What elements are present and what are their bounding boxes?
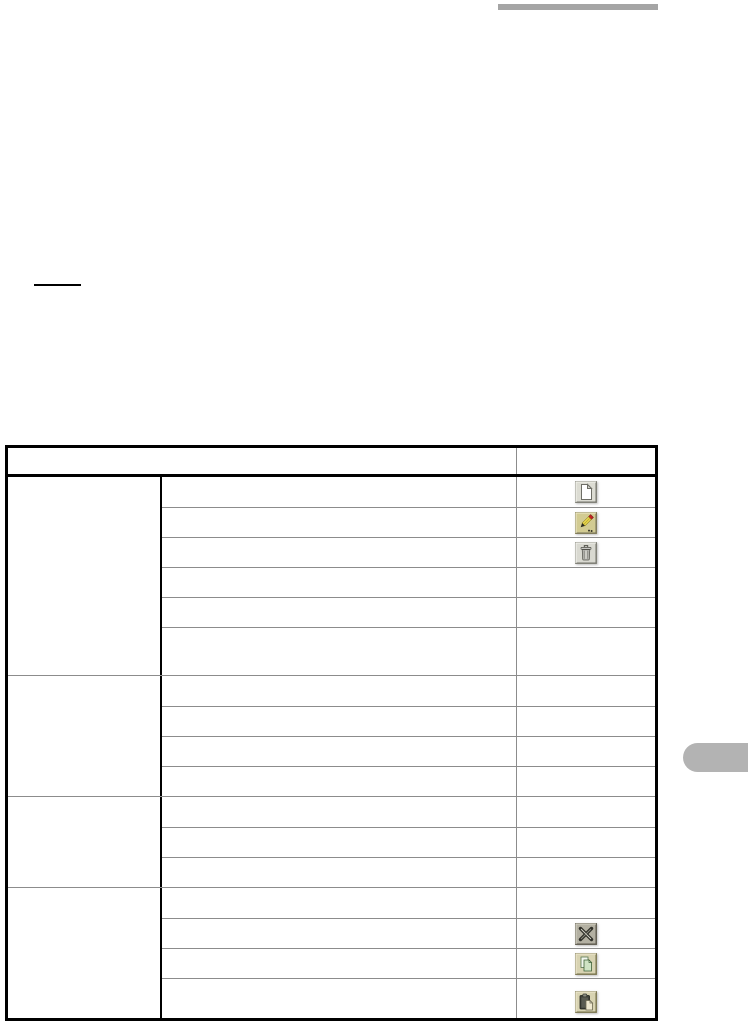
command-description-cell [162, 628, 516, 675]
group-label-cell [8, 888, 162, 1018]
command-description-cell [162, 797, 516, 827]
command-description-cell [162, 477, 516, 507]
command-description-cell [162, 508, 516, 537]
table-group-4 [8, 887, 655, 1018]
document-page: { "page": { "background": "#ffffff" }, "… [0, 0, 748, 1023]
table-group-1 [8, 477, 655, 675]
command-icon-cell [516, 568, 655, 597]
command-row [162, 477, 655, 507]
command-row [162, 948, 655, 978]
command-icon-cell [516, 676, 655, 706]
table-header-row [8, 448, 655, 477]
command-icon-cell [516, 628, 655, 675]
command-row [162, 676, 655, 706]
command-description-cell [162, 919, 516, 948]
command-description-cell [162, 676, 516, 706]
text-underline-rule [34, 284, 81, 286]
header-description-cell [8, 448, 516, 474]
command-icon-cell [516, 828, 655, 857]
command-icon-cell [516, 888, 655, 918]
command-row [162, 567, 655, 597]
command-row [162, 706, 655, 736]
command-row [162, 537, 655, 567]
command-row [162, 507, 655, 537]
cut-scissors-icon [575, 923, 597, 945]
command-icon-cell [516, 477, 655, 507]
command-row [162, 766, 655, 796]
top-edge-bar [498, 4, 658, 10]
command-icon-cell [516, 858, 655, 887]
command-row [162, 597, 655, 627]
command-icon-cell [516, 538, 655, 567]
edit-pencil-icon [575, 512, 597, 534]
copy-icon [575, 953, 597, 975]
command-row [162, 627, 655, 675]
command-row [162, 857, 655, 887]
command-icon-cell [516, 737, 655, 766]
command-icon-cell [516, 979, 655, 1018]
command-icon-cell [516, 598, 655, 627]
command-row [162, 888, 655, 918]
header-icon-cell [516, 448, 655, 474]
command-icon-cell [516, 707, 655, 736]
command-description-cell [162, 888, 516, 918]
command-icon-cell [516, 797, 655, 827]
table-body [8, 477, 655, 1018]
table-group-3 [8, 796, 655, 887]
commands-table [5, 445, 658, 1021]
command-icon-cell [516, 949, 655, 978]
new-document-icon [575, 481, 597, 503]
group-label-cell [8, 676, 162, 796]
table-group-2 [8, 675, 655, 796]
command-description-cell [162, 858, 516, 887]
page-thumb-tab [683, 743, 748, 772]
command-row [162, 736, 655, 766]
command-row [162, 918, 655, 948]
command-description-cell [162, 737, 516, 766]
command-description-cell [162, 979, 516, 1018]
group-label-cell [8, 797, 162, 887]
command-icon-cell [516, 508, 655, 537]
delete-trash-icon [575, 542, 597, 564]
group-label-cell [8, 477, 162, 675]
command-description-cell [162, 707, 516, 736]
command-icon-cell [516, 919, 655, 948]
command-row [162, 827, 655, 857]
command-row [162, 797, 655, 827]
command-description-cell [162, 949, 516, 978]
command-description-cell [162, 767, 516, 796]
command-row [162, 978, 655, 1018]
command-description-cell [162, 538, 516, 567]
command-description-cell [162, 598, 516, 627]
command-description-cell [162, 568, 516, 597]
command-icon-cell [516, 767, 655, 796]
paste-icon [575, 991, 597, 1013]
command-description-cell [162, 828, 516, 857]
